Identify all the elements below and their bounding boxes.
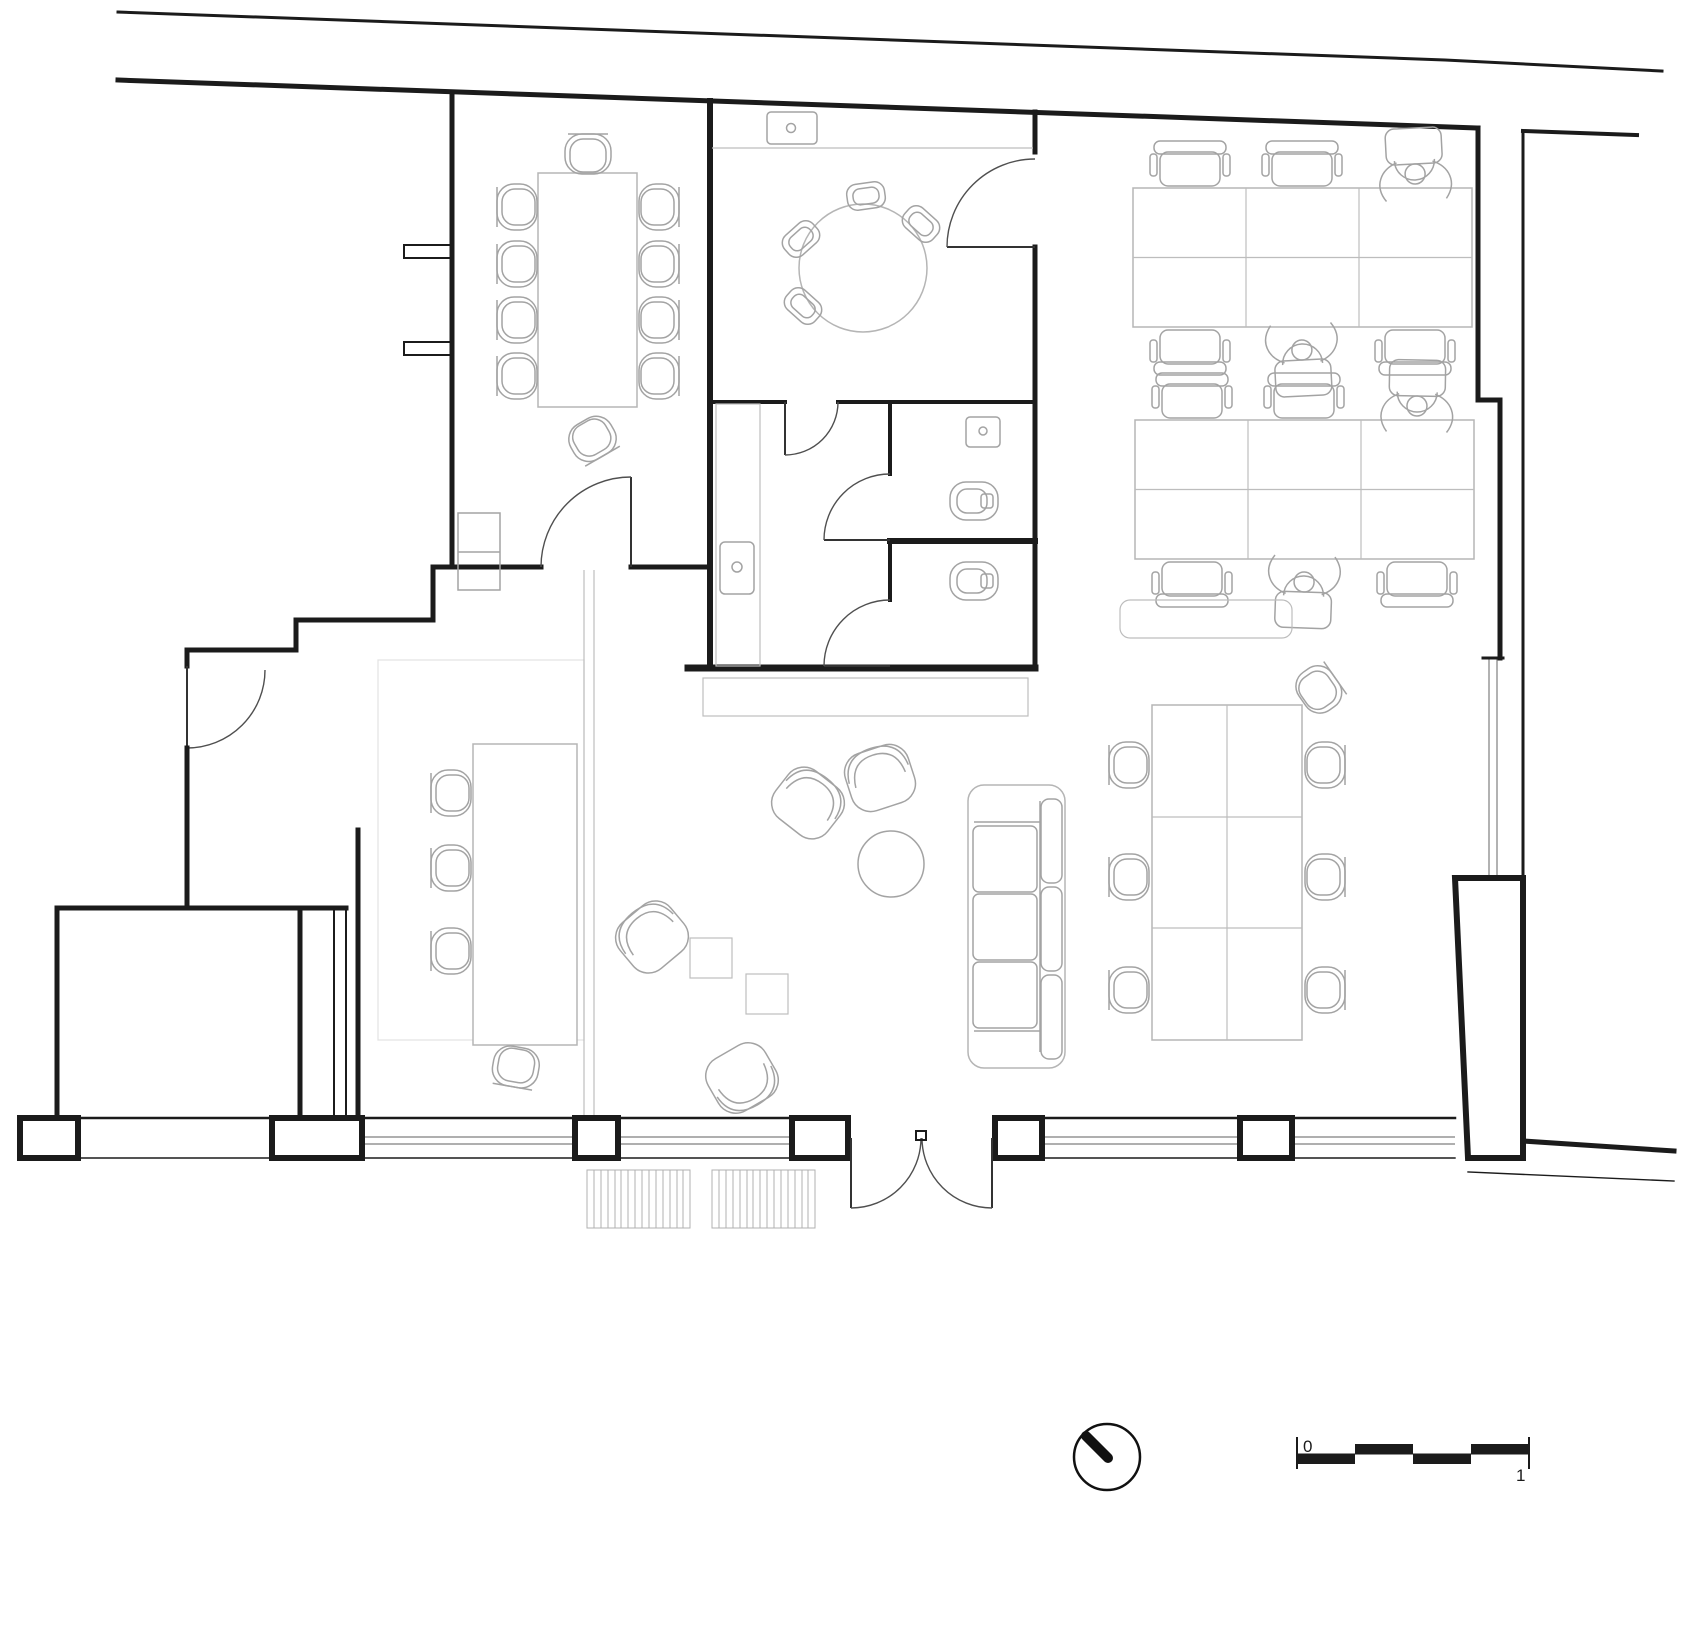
side-table	[690, 938, 732, 978]
right-long-table-group	[1109, 659, 1348, 1040]
lounge-group	[607, 738, 1065, 1121]
window-pier	[995, 1118, 1042, 1158]
desk-cluster-2	[1135, 359, 1474, 629]
meeting-room-door-swing	[541, 477, 631, 567]
meeting-table-group	[497, 134, 679, 468]
round-coffee-table	[858, 831, 924, 897]
meeting-table	[538, 173, 637, 407]
right-wall-window	[1483, 658, 1503, 878]
window-pier	[272, 1118, 362, 1158]
south-facade	[20, 1118, 1455, 1228]
wc-block	[688, 402, 1035, 668]
scale-one-label: 1	[1516, 1466, 1525, 1485]
window-pier	[1240, 1118, 1292, 1158]
kitchen-door-swing	[947, 159, 1035, 247]
desk-cluster-1	[1133, 126, 1472, 398]
seated-person	[1267, 555, 1341, 629]
wc-hall-door-swing	[785, 402, 838, 455]
kitchen-sink	[767, 112, 817, 144]
window-pier	[792, 1118, 848, 1158]
north-arrow-icon	[1074, 1424, 1140, 1490]
main-entrance-double-door	[851, 1131, 992, 1208]
side-table	[746, 974, 788, 1014]
floor-plan-canvas: 0 1	[0, 0, 1700, 1639]
scale-zero-label: 0	[1303, 1437, 1312, 1456]
lounge-chair	[607, 892, 697, 981]
meeting-room-cabinet	[458, 513, 500, 590]
window-pier	[20, 1118, 78, 1158]
wc-hall-counter	[716, 404, 760, 666]
toilet-icon	[950, 562, 998, 600]
floor-grate	[712, 1170, 815, 1228]
site-boundary-lines	[118, 12, 1662, 71]
right-wall-pier	[1455, 878, 1523, 1158]
wc-stall-sink	[966, 417, 1000, 447]
entry-door-swing	[187, 670, 265, 748]
wc-hall-sink	[720, 542, 754, 594]
armchair	[839, 738, 921, 816]
floor-plan-page: 0 1	[0, 0, 1700, 1639]
low-sideboard	[703, 678, 1028, 716]
wall-stub	[404, 245, 452, 258]
credenza	[1120, 600, 1292, 638]
glazed-screen-line	[584, 570, 594, 1118]
sofa	[968, 785, 1065, 1068]
kitchen-round-table-group	[778, 180, 944, 332]
wc-stall1-door-swing	[824, 474, 890, 540]
armchair	[764, 758, 854, 847]
entry-vestibule	[57, 567, 452, 1118]
meeting-room	[404, 92, 710, 668]
lounge-chair	[698, 1036, 786, 1122]
floor-grate	[587, 1170, 690, 1228]
window-pier	[575, 1118, 618, 1158]
round-table	[799, 204, 927, 332]
scale-bar: 0 1	[1297, 1437, 1529, 1485]
left-long-table-group	[431, 744, 577, 1091]
wc-stall2-door-swing	[824, 600, 890, 666]
long-table	[473, 744, 577, 1045]
toilet-icon	[950, 482, 998, 520]
wall-stub	[404, 342, 452, 355]
